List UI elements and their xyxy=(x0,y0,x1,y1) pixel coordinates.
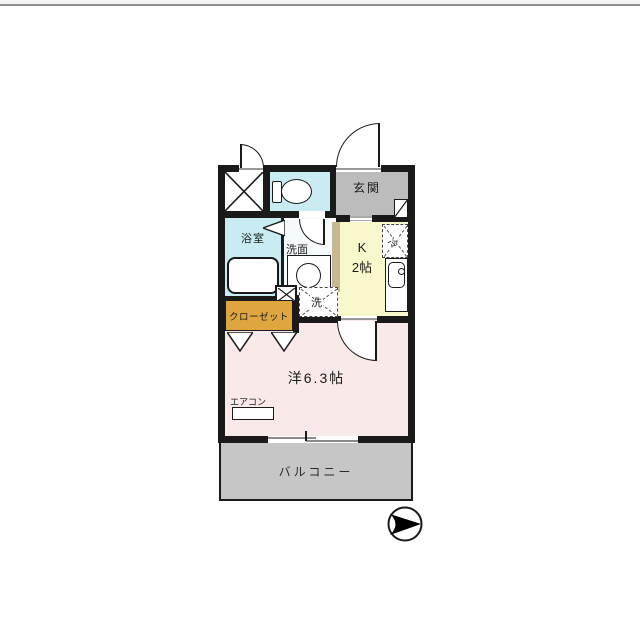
folding-door-icon-2 xyxy=(271,332,297,352)
north-arrow-icon xyxy=(386,505,424,543)
entrance-door-arc xyxy=(336,123,380,167)
balcony-label: バルコニー xyxy=(279,463,354,480)
wall-bottom-1 xyxy=(218,436,268,443)
window-center-tick xyxy=(305,431,307,441)
kitchen-partition xyxy=(332,222,340,292)
wall-right xyxy=(408,165,415,443)
shoe-cabinet-diagonal xyxy=(394,199,408,218)
closet: クローゼット xyxy=(225,300,293,331)
folding-door-icon-1 xyxy=(227,332,253,352)
bathtub-icon xyxy=(227,257,279,294)
washroom-label: 洗面 xyxy=(286,241,308,257)
laundry-label: 洗 xyxy=(310,294,323,310)
wall-toilet-bottom-1 xyxy=(277,211,299,218)
aircon-unit xyxy=(232,407,274,420)
kitchen-label-line2: 2帖 xyxy=(340,258,384,278)
vanity-basin-icon xyxy=(296,263,321,288)
wall-room-top-1 xyxy=(293,316,341,323)
storage-door-sill xyxy=(239,168,263,170)
kitchen-label-line1: K xyxy=(340,238,384,258)
wall-storage-bottom xyxy=(218,211,277,218)
top-rule-line xyxy=(0,4,640,6)
kitchen-faucet-icon xyxy=(398,268,405,275)
window-pane-2 xyxy=(306,440,358,442)
closet-label: クローゼット xyxy=(229,309,289,323)
toilet-bowl-icon xyxy=(281,179,312,204)
wall-bottom-2 xyxy=(358,436,415,443)
floorplan-page: 洗 冷 クローゼット エアコン バルコニー 玄関 浴室 洗面 K 2帖 洋6.3… xyxy=(0,0,640,630)
window-pane-1 xyxy=(268,437,316,439)
storage-x-icon xyxy=(225,172,263,211)
bathroom-label: 浴室 xyxy=(225,230,281,246)
entrance-step-line-1 xyxy=(350,216,372,218)
wall-left xyxy=(218,165,225,443)
wall-room-top-2 xyxy=(377,316,408,323)
entrance-label: 玄関 xyxy=(336,179,398,196)
kitchen-label: K 2帖 xyxy=(340,238,384,278)
pipe-space-x-icon xyxy=(278,288,295,301)
main-room-label: 洋6.3帖 xyxy=(225,368,408,388)
wall-entrance-bottom-1 xyxy=(336,215,350,222)
kitchen-sink-icon xyxy=(388,262,405,288)
storage-door-arc xyxy=(240,144,264,168)
entrance-step-line-2 xyxy=(350,220,372,222)
wall-top-2 xyxy=(263,165,336,172)
room-door-sill xyxy=(341,318,377,320)
balcony: バルコニー xyxy=(219,443,413,501)
entrance-door-sill xyxy=(336,168,381,170)
